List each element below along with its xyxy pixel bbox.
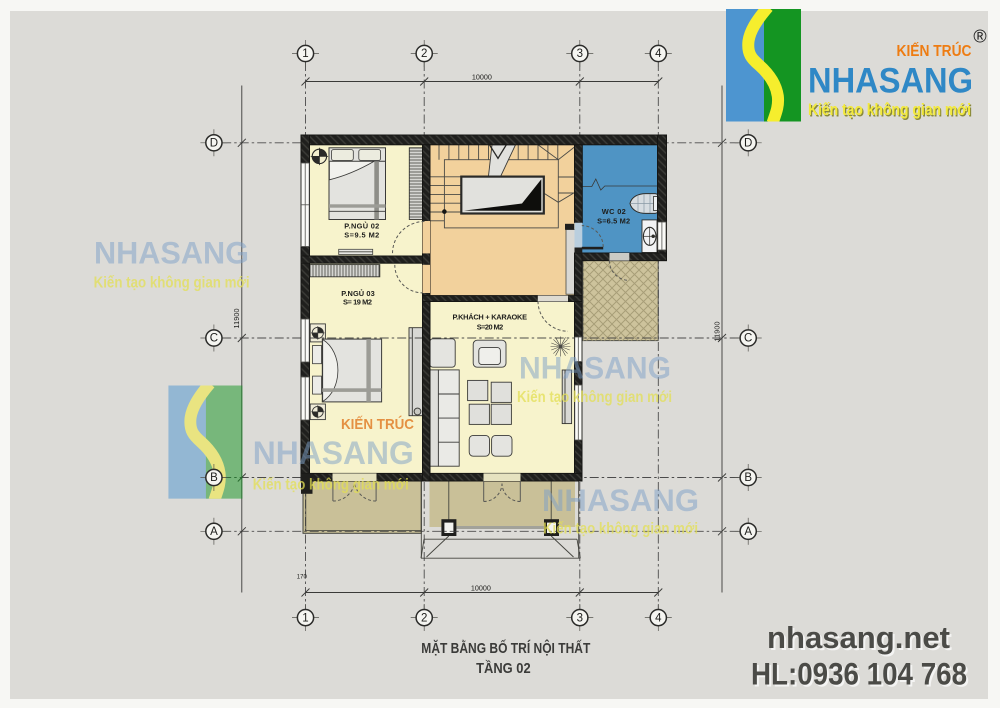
svg-text:10000: 10000: [472, 72, 492, 81]
svg-text:NHASANG: NHASANG: [542, 482, 699, 518]
svg-text:A: A: [744, 526, 752, 538]
svg-text:®: ®: [973, 27, 986, 47]
svg-text:NHASANG: NHASANG: [808, 62, 973, 101]
svg-text:170: 170: [297, 575, 308, 581]
svg-text:C: C: [744, 333, 752, 345]
svg-text:Kiến tạo không gian mới: Kiến tạo không gian mới: [808, 100, 971, 119]
svg-text:B: B: [210, 472, 218, 484]
svg-text:2: 2: [421, 48, 427, 60]
svg-text:Kiến tạo không gian mới: Kiến tạo không gian mới: [543, 521, 698, 538]
svg-text:S=20 M2: S=20 M2: [477, 323, 504, 332]
svg-text:Kiến tạo không gian mới: Kiến tạo không gian mới: [253, 477, 409, 494]
svg-text:S=9.5 M2: S=9.5 M2: [344, 231, 379, 240]
svg-text:WC 02: WC 02: [602, 207, 626, 216]
svg-text:B: B: [744, 472, 752, 484]
svg-text:NHASANG: NHASANG: [253, 435, 414, 471]
svg-text:HL:0936 104 768: HL:0936 104 768: [751, 656, 967, 692]
svg-text:S= 19 M2: S= 19 M2: [343, 298, 372, 307]
svg-text:A: A: [210, 526, 218, 538]
svg-text:MẶT BẰNG BỐ TRÍ NỘI THẤT: MẶT BẰNG BỐ TRÍ NỘI THẤT: [421, 639, 590, 657]
svg-text:10000: 10000: [471, 583, 491, 592]
svg-text:3: 3: [577, 48, 583, 60]
svg-text:4: 4: [655, 612, 662, 624]
svg-text:P.KHÁCH + KARAOKE: P.KHÁCH + KARAOKE: [453, 313, 528, 322]
svg-text:KIẾN TRÚC: KIẾN TRÚC: [341, 415, 414, 433]
svg-text:D: D: [744, 138, 752, 150]
svg-text:C: C: [210, 333, 218, 345]
svg-text:KIẾN TRÚC: KIẾN TRÚC: [897, 41, 972, 60]
svg-text:NHASANG: NHASANG: [94, 235, 249, 271]
svg-text:Kiến tạo không gian mới: Kiến tạo không gian mới: [517, 389, 672, 406]
svg-text:nhasang.net: nhasang.net: [767, 620, 950, 655]
svg-text:2: 2: [421, 612, 427, 624]
svg-text:Kiến tạo không gian mới: Kiến tạo không gian mới: [94, 275, 250, 292]
svg-text:1: 1: [302, 612, 308, 624]
svg-text:11900: 11900: [713, 322, 722, 342]
svg-text:NHASANG: NHASANG: [519, 350, 671, 386]
svg-text:P.NGỦ 02: P.NGỦ 02: [344, 221, 379, 230]
svg-text:1: 1: [302, 48, 308, 60]
svg-text:S=6.5 M2: S=6.5 M2: [597, 217, 630, 226]
svg-text:4: 4: [655, 48, 662, 60]
svg-text:11900: 11900: [232, 309, 241, 329]
svg-text:D: D: [210, 138, 218, 150]
svg-text:TẦNG 02: TẦNG 02: [476, 660, 531, 677]
svg-text:P.NGỦ 03: P.NGỦ 03: [341, 289, 375, 298]
svg-text:3: 3: [577, 612, 583, 624]
